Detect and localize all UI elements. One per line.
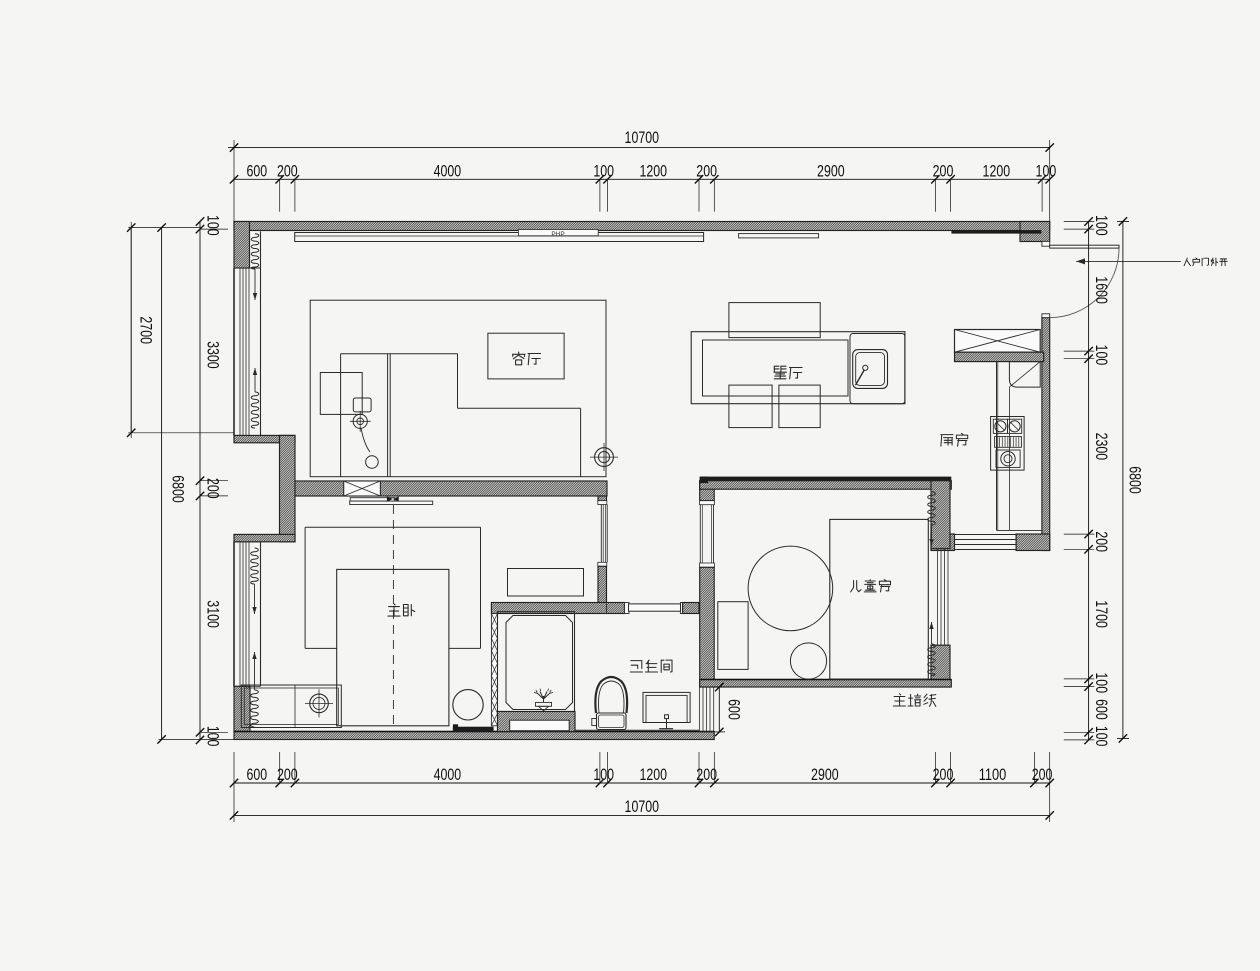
svg-text:4000: 4000 [434,162,462,181]
svg-text:200: 200 [933,765,954,784]
svg-text:200: 200 [1092,531,1111,552]
svg-text:PHP: PHP [551,231,564,238]
svg-text:200: 200 [696,162,717,181]
svg-text:600: 600 [725,699,744,720]
svg-text:6800: 6800 [1126,466,1145,494]
svg-text:1200: 1200 [639,765,667,784]
svg-text:100: 100 [204,726,223,747]
svg-text:100: 100 [1092,672,1111,693]
svg-text:200: 200 [277,162,298,181]
svg-text:200: 200 [204,478,223,499]
svg-text:10700: 10700 [625,797,660,816]
svg-text:10700: 10700 [625,128,660,147]
svg-text:600: 600 [247,765,268,784]
svg-text:2700: 2700 [137,316,156,344]
svg-text:100: 100 [1036,162,1057,181]
svg-text:200: 200 [1032,765,1053,784]
svg-text:100: 100 [1092,345,1111,366]
svg-text:100: 100 [204,215,223,236]
svg-text:1100: 1100 [979,765,1007,784]
svg-text:3100: 3100 [204,600,223,628]
svg-text:1200: 1200 [983,162,1011,181]
svg-text:100: 100 [593,162,614,181]
svg-text:2300: 2300 [1092,433,1111,461]
svg-text:1700: 1700 [1092,600,1111,628]
svg-text:100: 100 [1092,215,1111,236]
svg-text:1200: 1200 [639,162,667,181]
svg-text:6800: 6800 [169,475,188,503]
svg-text:200: 200 [933,162,954,181]
svg-text:4000: 4000 [434,765,462,784]
svg-text:2900: 2900 [817,162,845,181]
svg-text:2900: 2900 [811,765,839,784]
svg-text:200: 200 [277,765,298,784]
svg-text:100: 100 [593,765,614,784]
svg-text:100: 100 [1092,726,1111,747]
svg-text:3300: 3300 [204,341,223,369]
svg-text:600: 600 [247,162,268,181]
svg-text:200: 200 [696,765,717,784]
svg-text:600: 600 [1092,699,1111,720]
svg-text:1600: 1600 [1092,276,1111,304]
